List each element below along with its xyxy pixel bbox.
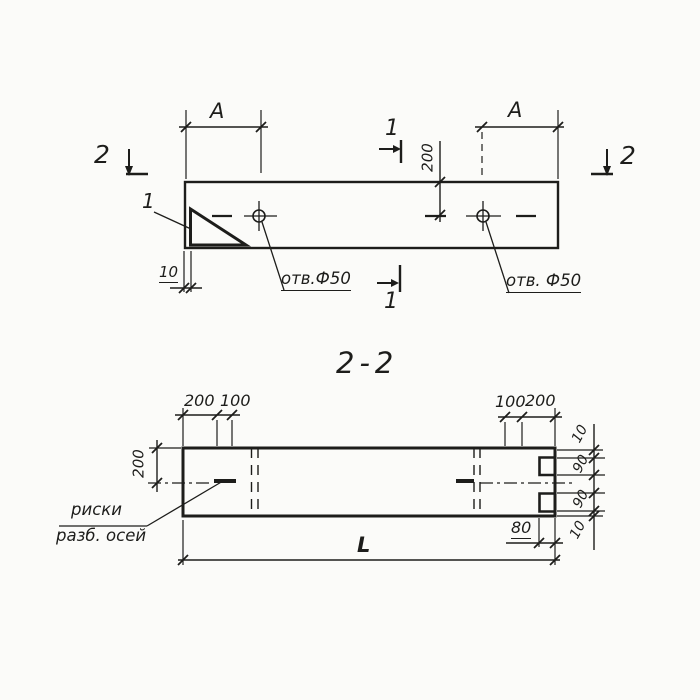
dim-100-topright-label: 100 <box>495 394 526 410</box>
section-view-ticks <box>152 410 599 565</box>
dim-200-left-lines <box>149 440 181 492</box>
section-title: 2-2 <box>336 349 398 378</box>
corner-detail-triangle <box>191 209 247 245</box>
detail-1-label: 1 <box>142 191 155 211</box>
beam-section-outline <box>183 448 555 516</box>
dim-80-label: 80 <box>511 520 531 539</box>
hole-left <box>212 201 277 231</box>
dim-200-topleft-label: 200 <box>184 393 215 409</box>
hole-right <box>425 201 536 231</box>
section-mark-2-right <box>591 149 613 176</box>
section-1-top-label: 1 <box>385 118 399 140</box>
hole-callout-left: отв.Ф50 <box>281 271 351 291</box>
axis-centerlines <box>148 481 573 483</box>
dim-100-topleft-label: 100 <box>220 393 251 409</box>
top-view-ticks <box>179 122 563 293</box>
beam-outline <box>185 182 558 248</box>
axes-note-line1: риски <box>71 502 122 519</box>
section-mark-1-top <box>379 140 401 163</box>
top-view <box>125 110 613 293</box>
drawing-sheet: A A 1 1 2 2 200 1 отв.Ф50 отв. Ф50 10 2-… <box>0 0 700 700</box>
hole-callout-right: отв. Ф50 <box>506 273 581 293</box>
dim-a-right-label: A <box>508 100 522 121</box>
end-notches <box>540 458 556 512</box>
dim-200-topright-label: 200 <box>525 393 556 409</box>
joint-dashed-lines <box>252 448 481 516</box>
section-mark-1-bottom <box>377 265 400 292</box>
section-mark-2-left <box>125 149 148 176</box>
dim-200-top-label: 200 <box>421 136 436 180</box>
section-2-left-label: 2 <box>94 142 110 167</box>
dim-10-label: 10 <box>159 265 178 283</box>
axes-note-line2: разб. осей <box>56 528 146 545</box>
section-1-bottom-label: 1 <box>384 291 398 313</box>
section-2-right-label: 2 <box>620 143 636 168</box>
dim-a-left-label: A <box>210 101 224 122</box>
dim-length-label: L <box>357 535 370 556</box>
dim-200-left-label: 200 <box>132 442 147 486</box>
